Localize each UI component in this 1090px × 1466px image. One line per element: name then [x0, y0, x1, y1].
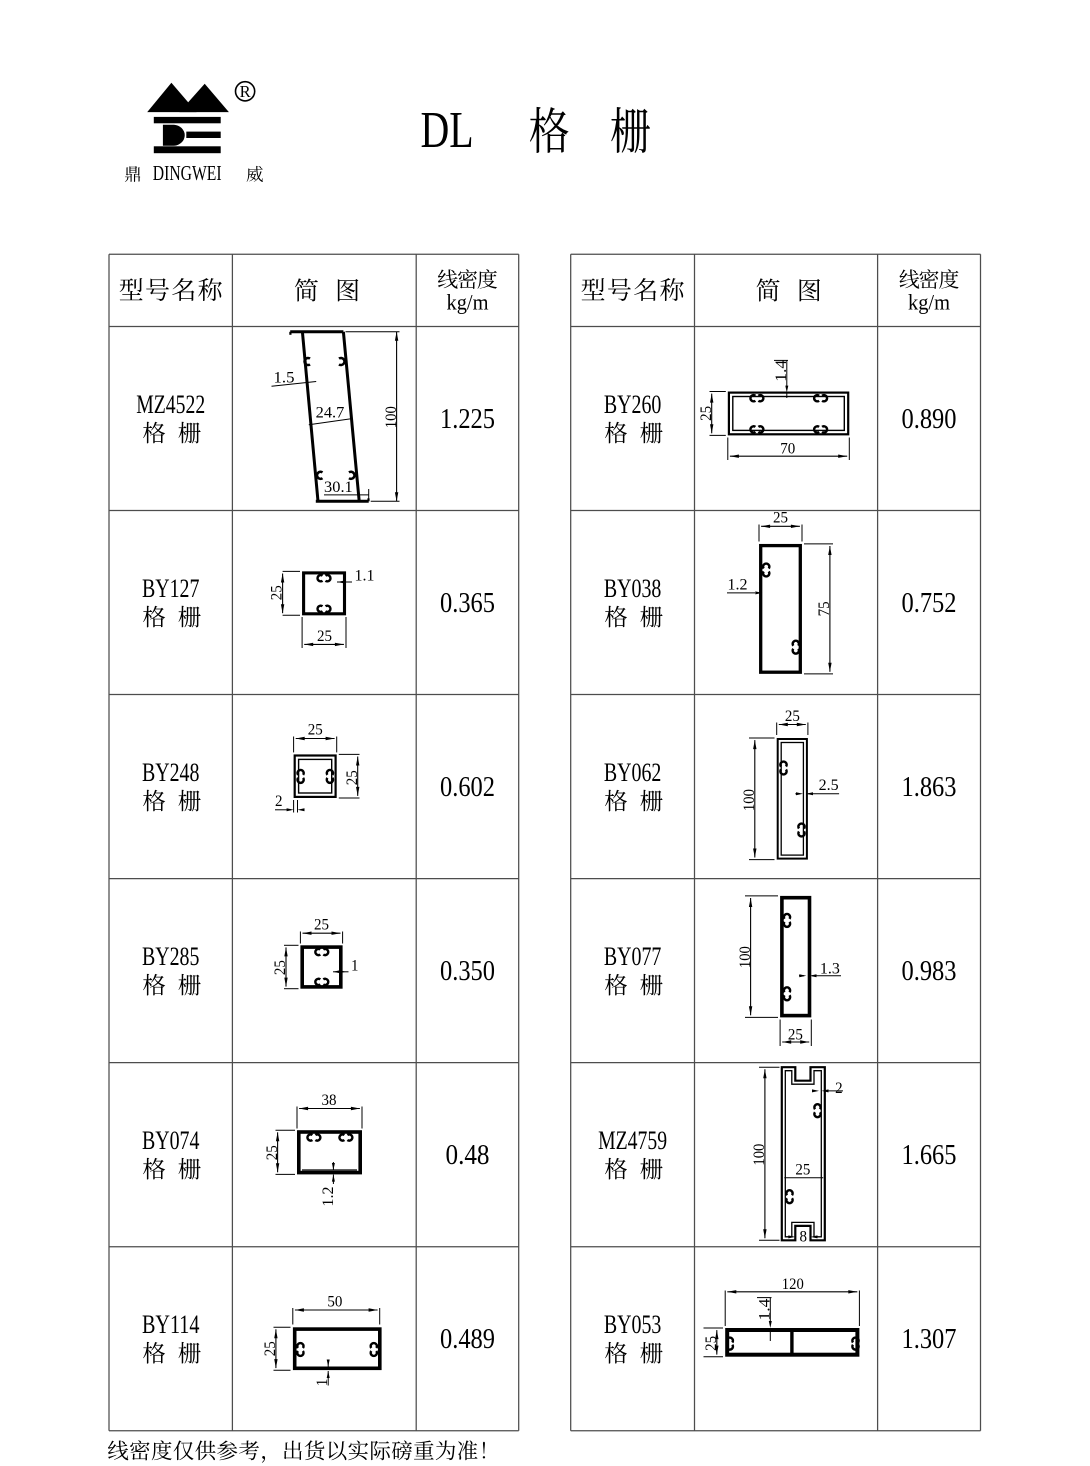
- svg-text:1.4: 1.4: [757, 1299, 774, 1321]
- svg-text:MZ4522: MZ4522: [136, 390, 205, 419]
- svg-text:25: 25: [698, 406, 715, 421]
- svg-text:100: 100: [737, 946, 754, 968]
- svg-text:2: 2: [835, 1080, 843, 1097]
- svg-text:BY260: BY260: [604, 390, 662, 419]
- svg-text:100: 100: [751, 1144, 768, 1166]
- svg-text:BY114: BY114: [142, 1310, 200, 1339]
- svg-text:70: 70: [780, 440, 795, 457]
- svg-text:0.489: 0.489: [440, 1324, 495, 1355]
- svg-text:DINGWEI: DINGWEI: [153, 161, 222, 185]
- svg-text:25: 25: [269, 585, 286, 600]
- svg-text:1.307: 1.307: [902, 1324, 957, 1355]
- svg-text:R: R: [240, 82, 251, 101]
- svg-text:MZ4759: MZ4759: [598, 1126, 667, 1155]
- svg-text:8: 8: [800, 1229, 808, 1246]
- svg-text:kg/m: kg/m: [908, 290, 950, 315]
- svg-text:25: 25: [795, 1162, 810, 1179]
- svg-text:0.350: 0.350: [440, 956, 495, 987]
- svg-text:38: 38: [322, 1092, 337, 1109]
- svg-text:100: 100: [383, 406, 400, 428]
- svg-text:1.863: 1.863: [902, 772, 957, 803]
- svg-text:24.7: 24.7: [316, 405, 345, 422]
- svg-text:DL: DL: [421, 102, 474, 159]
- svg-text:100: 100: [741, 789, 758, 811]
- svg-text:1.3: 1.3: [820, 961, 840, 978]
- svg-text:25: 25: [773, 510, 788, 527]
- svg-text:120: 120: [782, 1276, 804, 1293]
- svg-text:BY285: BY285: [142, 942, 200, 971]
- svg-text:2: 2: [275, 793, 283, 810]
- svg-text:BY038: BY038: [604, 574, 662, 603]
- svg-text:0.752: 0.752: [902, 588, 957, 619]
- svg-text:kg/m: kg/m: [447, 290, 489, 315]
- svg-text:0.602: 0.602: [440, 772, 495, 803]
- svg-text:0.890: 0.890: [902, 404, 957, 435]
- svg-text:1.225: 1.225: [440, 404, 495, 435]
- svg-text:75: 75: [816, 601, 833, 616]
- svg-text:BY062: BY062: [604, 758, 662, 787]
- svg-text:1.1: 1.1: [355, 567, 375, 584]
- svg-text:1.4: 1.4: [773, 360, 790, 382]
- svg-text:BY248: BY248: [142, 758, 200, 787]
- svg-text:25: 25: [344, 770, 361, 785]
- svg-text:25: 25: [264, 1145, 281, 1160]
- svg-text:25: 25: [262, 1341, 279, 1356]
- svg-text:0.48: 0.48: [446, 1140, 490, 1171]
- svg-text:2.5: 2.5: [819, 777, 839, 794]
- svg-text:50: 50: [327, 1294, 342, 1311]
- svg-text:25: 25: [317, 628, 332, 645]
- svg-text:25: 25: [308, 722, 323, 739]
- svg-text:30.1: 30.1: [324, 479, 353, 496]
- svg-text:0.365: 0.365: [440, 588, 495, 619]
- svg-text:BY074: BY074: [142, 1126, 200, 1155]
- svg-text:BY053: BY053: [604, 1310, 662, 1339]
- svg-text:1: 1: [351, 958, 359, 975]
- svg-text:1.665: 1.665: [902, 1140, 957, 1171]
- svg-text:25: 25: [785, 708, 800, 725]
- svg-text:1.2: 1.2: [320, 1187, 337, 1207]
- svg-text:25: 25: [272, 960, 289, 975]
- svg-text:BY077: BY077: [604, 942, 662, 971]
- svg-text:0.983: 0.983: [902, 956, 957, 987]
- svg-text:BY127: BY127: [142, 574, 200, 603]
- svg-text:25: 25: [314, 917, 329, 934]
- svg-text:1.2: 1.2: [728, 577, 748, 594]
